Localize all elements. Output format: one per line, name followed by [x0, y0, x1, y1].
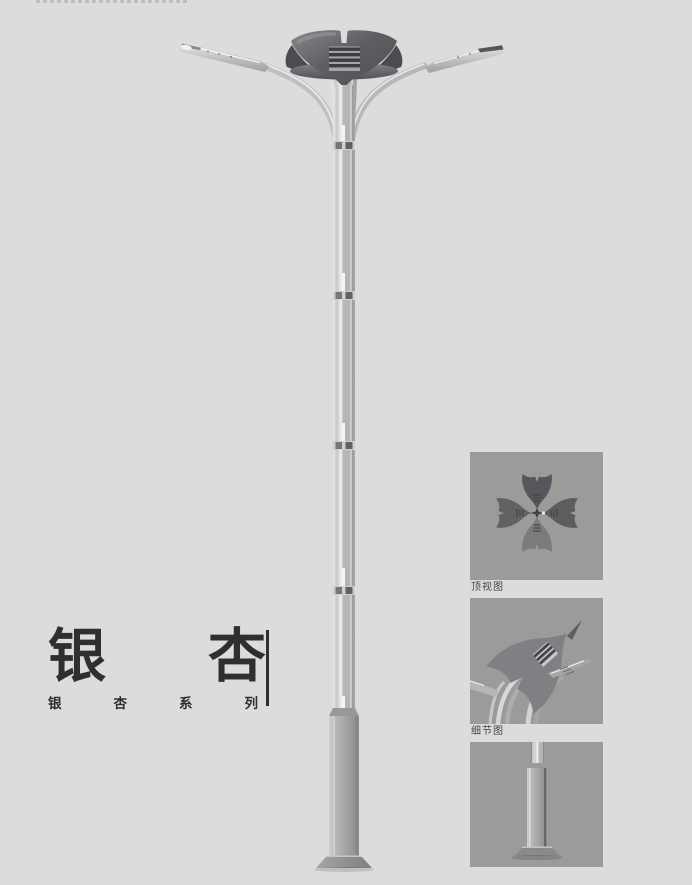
top-view-leaf-cross — [496, 474, 578, 552]
crown-ginkgo-leaf — [291, 30, 397, 89]
top-view-image — [470, 452, 603, 580]
pole — [333, 85, 355, 716]
detail-view-panel: 细节图 — [470, 598, 603, 740]
top-view-panel: 顶视图 — [470, 452, 603, 596]
base-view-image — [470, 742, 603, 867]
top-view-label: 顶视图 — [470, 580, 603, 596]
base-view-panel — [470, 742, 603, 869]
detail-left-blade-fragment — [470, 681, 498, 697]
detail-view-image — [470, 598, 603, 724]
product-title-block: 银杏 银杏系列 — [48, 626, 270, 712]
base-view-plate — [511, 847, 563, 861]
left-lamp-head — [179, 44, 269, 73]
catalog-page: 银杏 银杏系列 — [0, 0, 692, 885]
crown-vent-slats — [329, 47, 360, 72]
base-view-column — [527, 765, 547, 848]
detail-view-label: 细节图 — [470, 724, 603, 740]
detail-panel-column: 顶视图 — [470, 452, 603, 871]
pole-base — [314, 708, 374, 872]
base-view-label — [470, 867, 603, 869]
right-lamp-head — [425, 45, 505, 73]
product-title: 银杏 — [48, 626, 266, 688]
series-label: 银杏系列 — [48, 692, 258, 712]
title-divider-bar — [266, 630, 269, 706]
